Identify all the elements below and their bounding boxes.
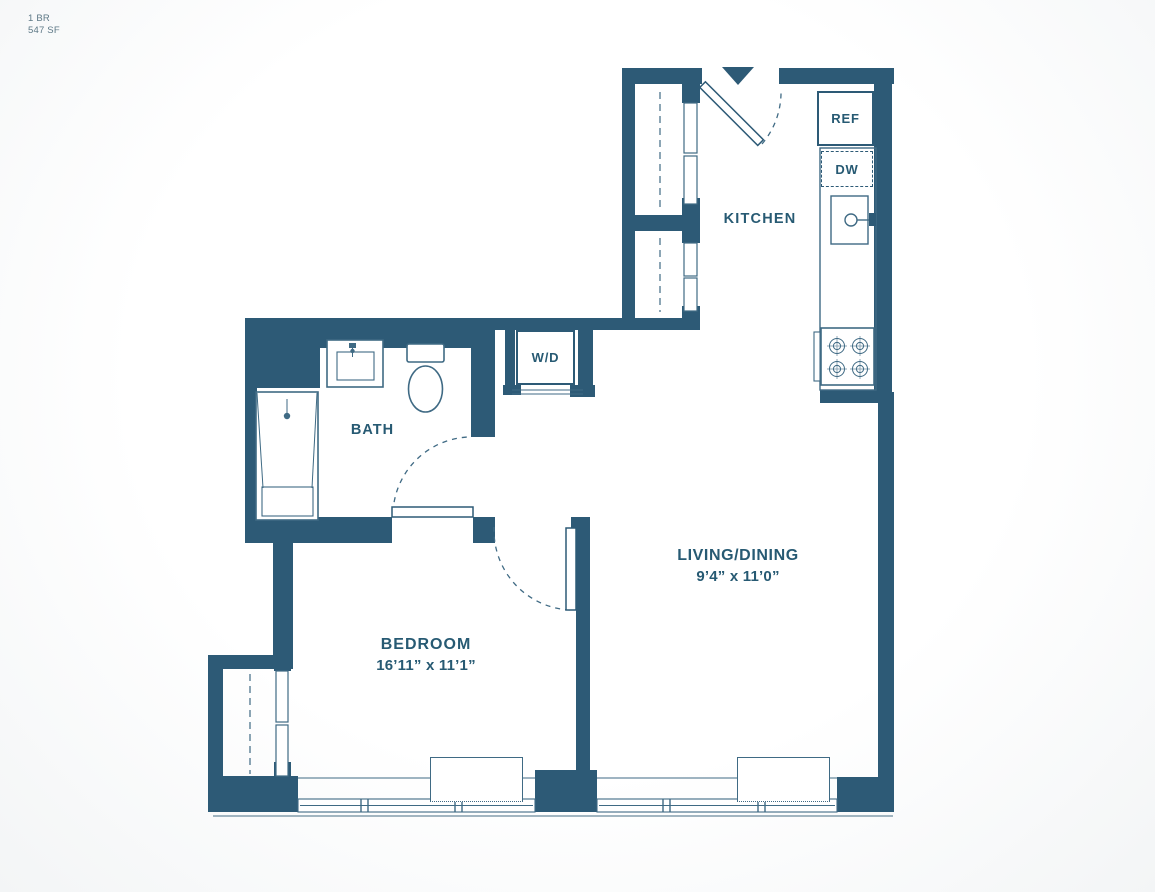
shower-stall bbox=[256, 392, 318, 520]
dishwasher-label: DW bbox=[835, 162, 858, 177]
unit-type-label: 1 BR bbox=[28, 13, 60, 25]
wall bbox=[495, 318, 700, 330]
dishwasher-box: DW bbox=[821, 151, 873, 187]
unit-area-label: 547 SF bbox=[28, 25, 60, 37]
kitchen-label: KITCHEN bbox=[690, 211, 830, 227]
living-dining-label: LIVING/DINING bbox=[648, 545, 828, 566]
kitchen-sink bbox=[831, 196, 876, 244]
wall bbox=[245, 517, 392, 543]
wall bbox=[471, 318, 495, 437]
hall-closet-upper bbox=[660, 84, 700, 215]
wall bbox=[273, 533, 293, 669]
wall bbox=[578, 330, 593, 393]
hall-closet-lower bbox=[660, 231, 700, 320]
bedroom-dimensions: 16’11” x 11’1” bbox=[336, 655, 516, 676]
bedroom-label: BEDROOM bbox=[336, 634, 516, 655]
entry-arrow-icon bbox=[722, 67, 754, 85]
floorplan-canvas: 1 BR 547 SF bbox=[0, 0, 1155, 892]
wall bbox=[473, 517, 495, 543]
unit-info: 1 BR 547 SF bbox=[28, 13, 60, 37]
bedroom-closet bbox=[250, 655, 291, 778]
wall bbox=[622, 84, 635, 330]
wall bbox=[576, 517, 590, 772]
bath-door bbox=[392, 437, 473, 517]
living-dining-dimensions: 9’4” x 11’0” bbox=[648, 566, 828, 587]
bedroom-label-block: BEDROOM 16’11” x 11’1” bbox=[336, 634, 516, 676]
washer-dryer-box: W/D bbox=[516, 330, 575, 385]
living-ptac-unit bbox=[737, 757, 830, 802]
bedroom-door bbox=[494, 527, 576, 610]
refrigerator-box: REF bbox=[817, 91, 874, 146]
wall bbox=[622, 68, 702, 84]
wall bbox=[208, 776, 298, 812]
wall bbox=[505, 330, 515, 393]
stove-4-burner bbox=[814, 328, 874, 385]
bedroom-ptac-unit bbox=[430, 757, 523, 802]
wall bbox=[503, 385, 521, 395]
bath-label: BATH bbox=[320, 422, 425, 438]
wall bbox=[837, 777, 894, 812]
washer-dryer-label: W/D bbox=[532, 350, 560, 365]
toilet bbox=[407, 344, 444, 412]
refrigerator-label: REF bbox=[831, 111, 859, 126]
entry-door bbox=[700, 82, 781, 146]
living-label-block: LIVING/DINING 9’4” x 11’0” bbox=[648, 545, 828, 587]
wall bbox=[874, 68, 892, 392]
wall bbox=[245, 318, 320, 388]
wall bbox=[878, 392, 894, 812]
wall bbox=[535, 770, 597, 812]
wall bbox=[570, 385, 595, 397]
